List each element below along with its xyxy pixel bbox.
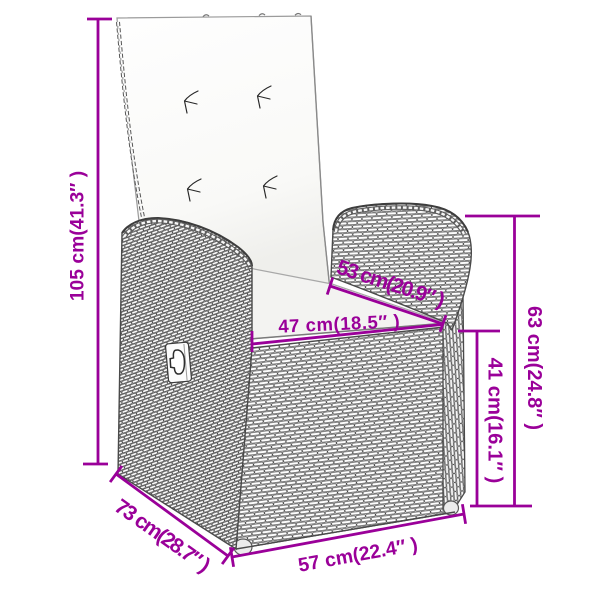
- svg-text:105 cm(41.3″ ): 105 cm(41.3″ ): [68, 171, 89, 301]
- svg-text:63 cm(24.8″ ): 63 cm(24.8″ ): [523, 306, 545, 430]
- svg-text:41 cm(16.1″ ): 41 cm(16.1″ ): [484, 358, 506, 484]
